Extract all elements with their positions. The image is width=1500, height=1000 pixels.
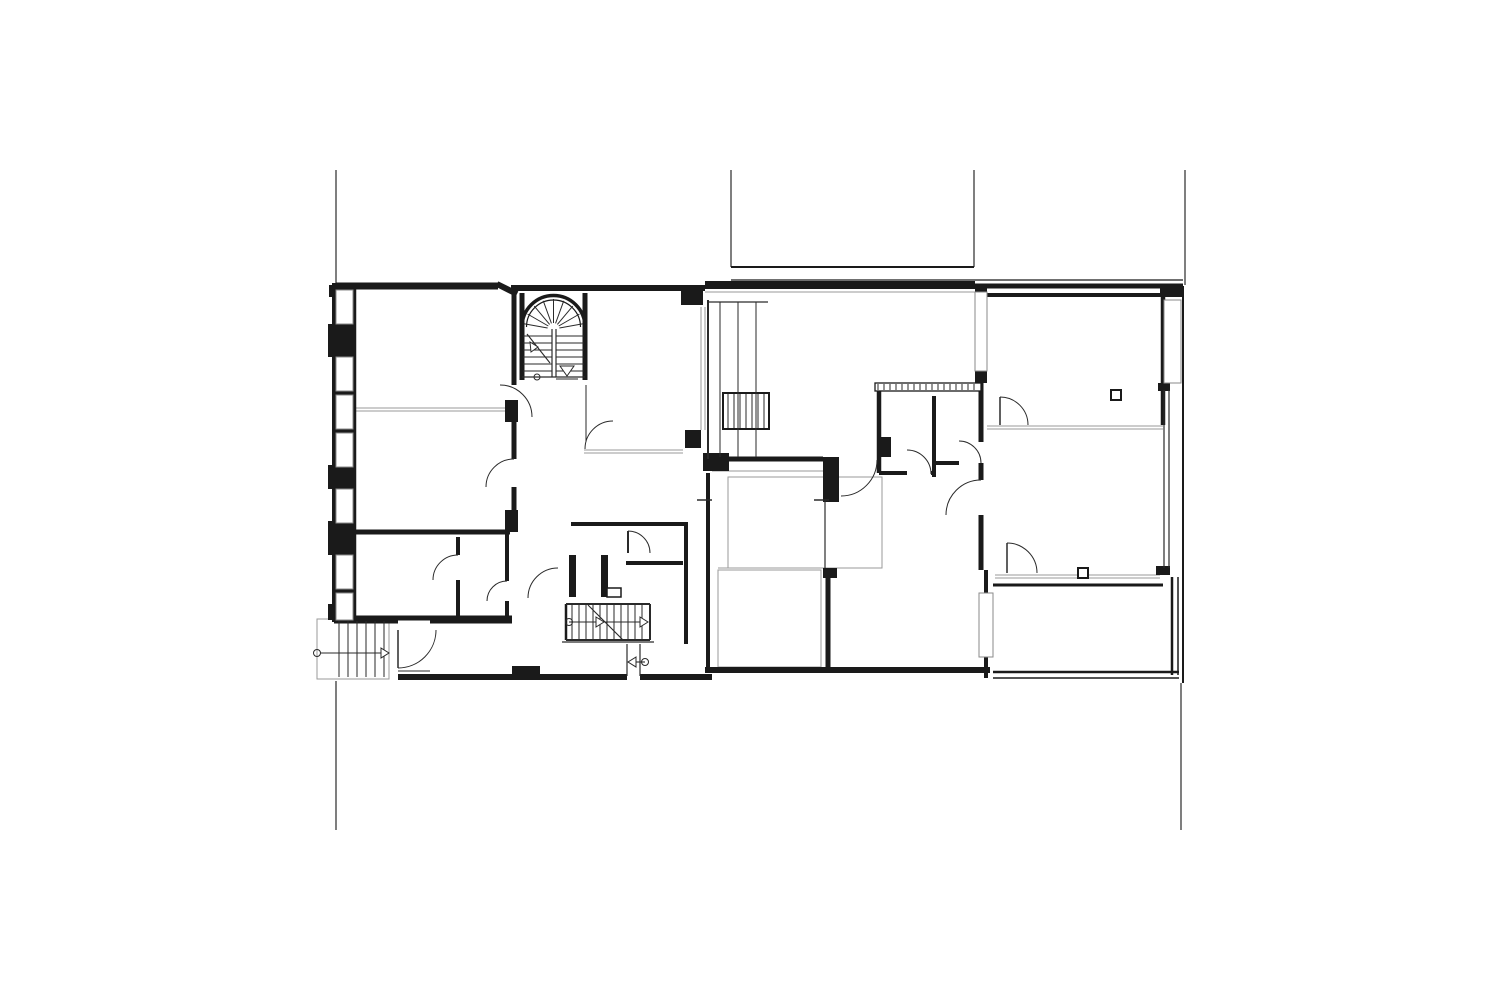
outline-box: [875, 383, 981, 391]
window-opening: [336, 395, 353, 429]
door-swing-arc: [433, 555, 458, 580]
window-openings: [336, 290, 1181, 657]
door-swing-arc: [528, 568, 558, 598]
winder-tread: [534, 306, 549, 324]
door-swing-arc: [946, 480, 981, 515]
direction-arrowhead: [628, 657, 636, 667]
winder-tread: [543, 301, 551, 324]
winder-tread: [559, 324, 583, 328]
door-swing-arc: [628, 531, 650, 553]
door-swing-arc: [1000, 397, 1028, 425]
wall-block: [823, 457, 839, 502]
floor-plan-page: [0, 0, 1500, 1000]
wall-segments: [334, 267, 1183, 683]
wall-block: [505, 510, 518, 532]
window-opening: [336, 433, 353, 467]
wall-block: [703, 453, 729, 471]
door-swing-arc: [841, 460, 877, 496]
window-opening: [336, 489, 353, 523]
wall-block: [685, 430, 701, 448]
direction-arrowhead: [640, 617, 648, 627]
direction-arrowhead: [381, 648, 389, 658]
overhead-beam-lines: [356, 292, 1163, 578]
wall-block: [328, 324, 335, 357]
window-opening: [979, 593, 993, 657]
window-opening: [336, 357, 353, 391]
window-opening: [336, 555, 353, 589]
door-swing-arc: [486, 459, 514, 487]
outline-box: [1111, 390, 1121, 400]
overhead-outline: [728, 477, 882, 568]
door-swing-arc: [487, 581, 507, 601]
floor-plan-canvas: [0, 0, 1500, 1000]
winder-tread: [559, 314, 580, 326]
wall-block: [1160, 286, 1183, 297]
door-swing-arc: [1007, 543, 1037, 573]
winder-tread: [524, 324, 548, 328]
wall-block: [328, 465, 335, 489]
wall-block: [823, 568, 837, 578]
outline-box: [1078, 568, 1088, 578]
winder-tread: [557, 306, 572, 324]
wall-block: [512, 666, 540, 678]
door-swing-arc: [398, 630, 436, 668]
door-swing-arc: [907, 450, 931, 474]
door-swing-arc: [959, 441, 981, 463]
winder-tread: [556, 301, 564, 324]
overhead-outline: [718, 570, 821, 667]
wall-block: [328, 604, 335, 620]
overhead-outline: [317, 619, 389, 679]
wall-block: [1156, 566, 1170, 575]
door-swing-arc: [585, 421, 613, 449]
window-opening: [1164, 300, 1181, 383]
wall-block: [975, 371, 987, 383]
wall-block: [878, 437, 891, 457]
window-opening: [975, 292, 987, 371]
window-opening: [336, 593, 353, 620]
outline-box: [607, 588, 621, 597]
wall-block: [681, 285, 703, 305]
overhead-outlines: [317, 477, 882, 679]
wall-block: [329, 285, 335, 297]
wall-block: [505, 400, 518, 422]
wall-block: [328, 521, 335, 555]
wall-block: [569, 555, 576, 597]
site-boundary-lines: [336, 170, 1185, 830]
winder-stair: [522, 296, 585, 328]
wall-block: [1158, 383, 1170, 391]
winder-tread: [528, 314, 549, 326]
window-opening: [336, 290, 353, 324]
